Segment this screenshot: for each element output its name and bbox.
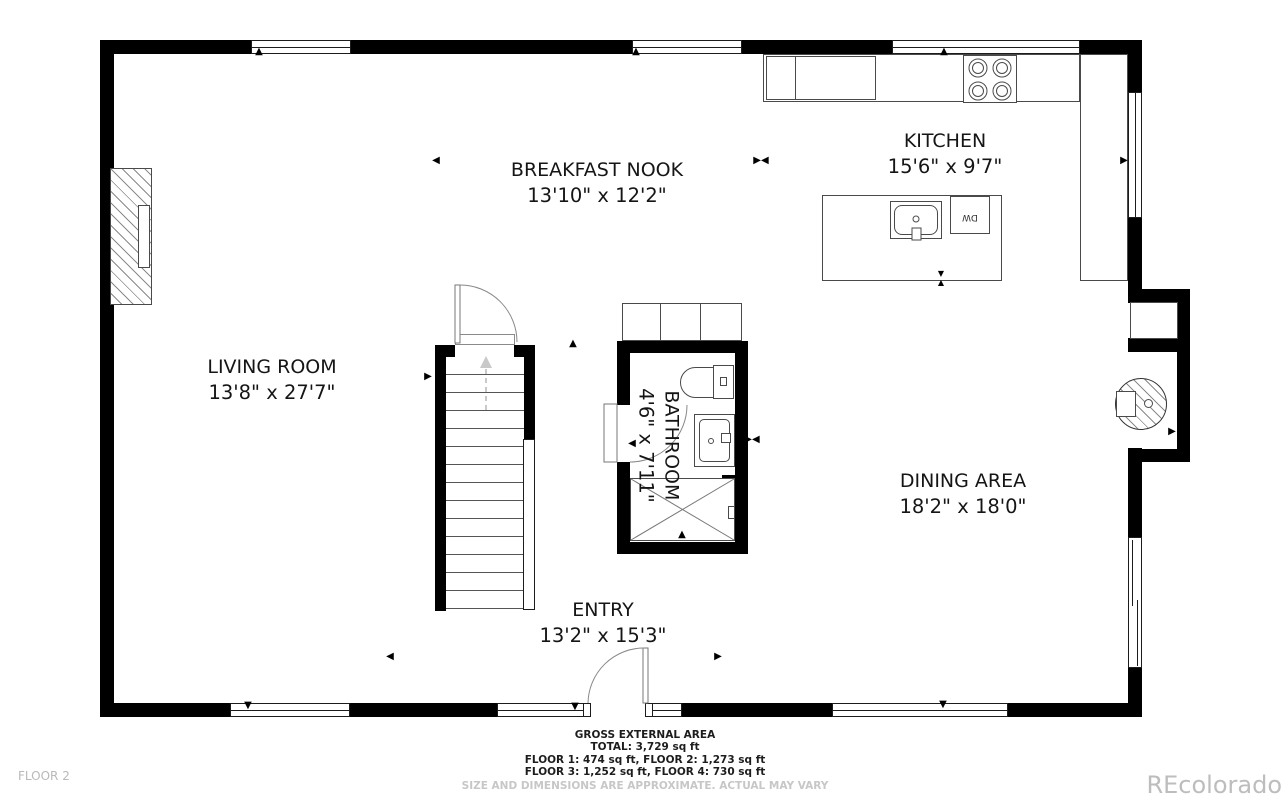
recolorado-watermark: REcolorado [1146, 771, 1282, 799]
wall-niche-separator [1128, 338, 1178, 352]
stove [963, 55, 1017, 103]
fireplace-firebox [138, 205, 150, 268]
dim-marker-up: ▲ [938, 279, 944, 287]
dim-marker-pair: ▶◀ [744, 435, 759, 445]
wall-stairs-stub-left [435, 345, 455, 357]
room-label-bathroom: BATHROOM 4'6" x 7'11" [633, 335, 684, 555]
room-name: BREAKFAST NOOK [447, 158, 747, 183]
dim-marker-right: ▶ [424, 372, 432, 382]
wall-stairs-left [435, 345, 446, 611]
wall-bumpout-bottom [1142, 449, 1190, 462]
stair-door-threshold [455, 334, 515, 345]
area-summary-floors-3-4: FLOOR 3: 1,252 sq ft, FLOOR 4: 730 sq ft [445, 766, 845, 778]
stair-treads [446, 357, 524, 609]
entry-door-jamb-right [645, 703, 653, 717]
dim-marker-left: ◀ [105, 374, 113, 384]
window-right-kitchen [1128, 92, 1142, 218]
area-summary-disclaimer: SIZE AND DIMENSIONS ARE APPROXIMATE. ACT… [445, 780, 845, 792]
dim-marker-pair: ▶◀ [753, 156, 768, 166]
room-dims: 13'10" x 12'2" [447, 183, 747, 209]
room-name: LIVING ROOM [122, 355, 422, 380]
floor-plan-page: DW [0, 0, 1288, 804]
dim-marker-right: ▶ [1168, 427, 1176, 437]
refrigerator [766, 56, 876, 100]
window-top-kitchen [892, 40, 1080, 54]
room-name: DINING AREA [813, 469, 1113, 494]
toilet-bowl [680, 367, 716, 398]
dim-marker-down: ▼ [678, 345, 686, 355]
entry-door-arc [588, 648, 644, 703]
dim-marker-right: ▶ [714, 652, 722, 662]
dishwasher-label: DW [952, 212, 988, 222]
dim-marker-right: ▶ [1120, 156, 1128, 166]
room-label-kitchen: KITCHEN 15'6" x 9'7" [795, 129, 1095, 180]
dim-marker-down: ▼ [938, 270, 944, 278]
room-name: KITCHEN [795, 129, 1095, 154]
wall-stairs-right [524, 345, 535, 439]
room-dims: 15'6" x 9'7" [795, 154, 1095, 180]
room-label-entry: ENTRY 13'2" x 15'3" [453, 598, 753, 649]
dim-marker-left: ◀ [432, 156, 440, 166]
window-top-2 [632, 40, 742, 54]
vanity-faucet [721, 433, 731, 443]
entry-door-jamb-left [583, 703, 591, 717]
dim-marker-down: ▼ [571, 702, 579, 712]
area-summary: GROSS EXTERNAL AREA TOTAL: 3,729 sq ft F… [445, 729, 845, 792]
room-dims: 13'8" x 27'7" [122, 380, 422, 406]
room-name: ENTRY [453, 598, 753, 623]
island-sink-basin [894, 205, 938, 235]
window-top-1 [251, 40, 351, 54]
dim-marker-down: ▼ [244, 701, 252, 711]
furnace-knob [1144, 399, 1153, 408]
area-summary-title: GROSS EXTERNAL AREA [445, 729, 845, 741]
entry-door-leaf [643, 648, 648, 703]
stair-rail [523, 439, 535, 610]
room-dims: 13'2" x 15'3" [453, 623, 753, 649]
dim-marker-down: ▼ [939, 700, 947, 710]
wall-bathroom-left-lower [617, 462, 630, 554]
dim-marker-up: ▲ [940, 47, 948, 57]
niche-cabinet [1130, 302, 1178, 339]
room-label-living-room: LIVING ROOM 13'8" x 27'7" [122, 355, 422, 406]
entry-door-opening [583, 703, 653, 717]
bathroom-door-leaf [604, 404, 617, 462]
window-bottom-4 [832, 703, 1008, 717]
wall-bathroom-right [735, 341, 748, 554]
furnace-panel [1116, 391, 1136, 417]
room-dims: 18'2" x 18'0" [813, 494, 1113, 520]
room-dims: 4'6" x 7'11" [633, 335, 659, 555]
closet-divider-2 [700, 303, 701, 341]
floor-label: FLOOR 2 [18, 769, 70, 783]
room-label-breakfast-nook: BREAKFAST NOOK 13'10" x 12'2" [447, 158, 747, 209]
shower-valve [728, 506, 735, 519]
sliding-door-right [1128, 537, 1142, 668]
dim-marker-left: ◀ [386, 652, 394, 662]
dim-marker-up: ▲ [255, 47, 263, 57]
room-label-dining-area: DINING AREA 18'2" x 18'0" [813, 469, 1113, 520]
window-bottom-3 [651, 703, 682, 717]
area-summary-floors-1-2: FLOOR 1: 474 sq ft, FLOOR 2: 1,273 sq ft [445, 754, 845, 766]
wall-bumpout-right [1177, 289, 1190, 462]
area-summary-total: TOTAL: 3,729 sq ft [445, 741, 845, 753]
wall-bathroom-left-upper [617, 341, 630, 405]
dim-marker-up: ▲ [678, 530, 686, 540]
refrigerator-divider [795, 56, 796, 100]
room-name: BATHROOM [658, 335, 683, 555]
dim-marker-up: ▲ [632, 47, 640, 57]
dim-marker-up: ▲ [569, 339, 577, 349]
dim-marker-left: ◀ [628, 439, 636, 449]
toilet-button [720, 377, 727, 386]
